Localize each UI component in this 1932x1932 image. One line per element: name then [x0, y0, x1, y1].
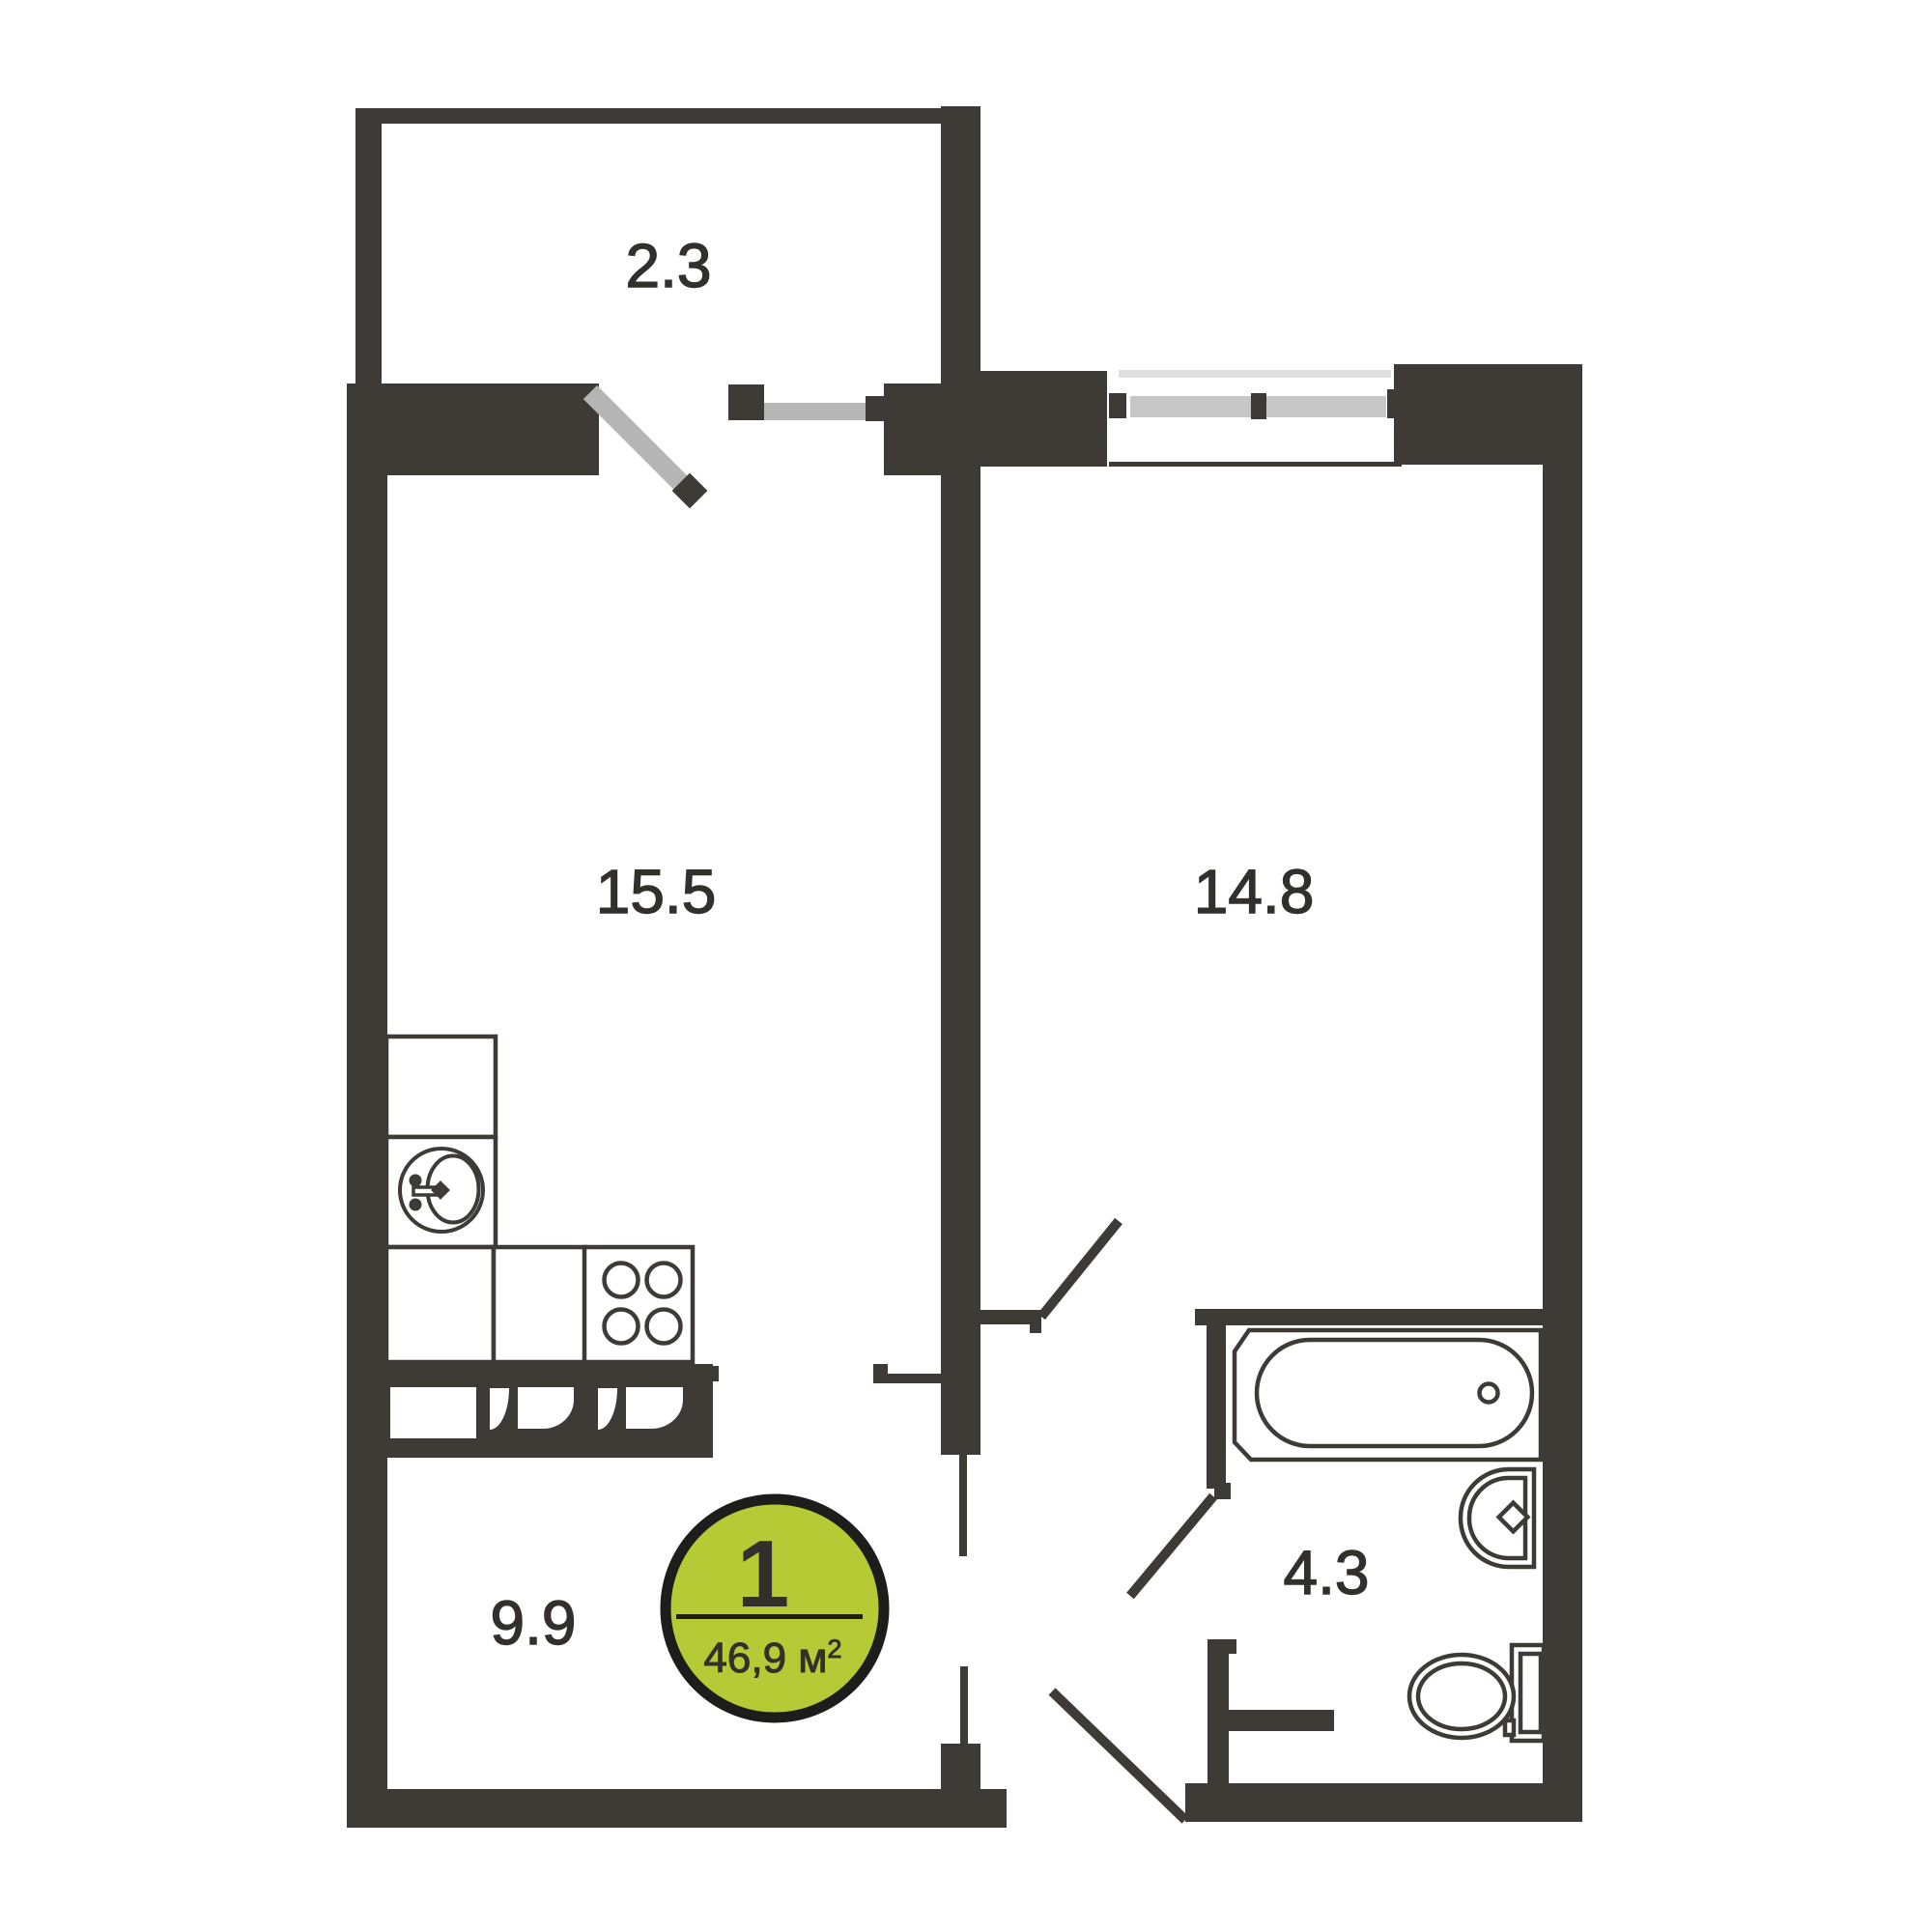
svg-text:4.3: 4.3: [1284, 1538, 1370, 1607]
svg-text:9.9: 9.9: [491, 1588, 577, 1658]
svg-text:1: 1: [737, 1520, 790, 1627]
svg-text:46,9 м2: 46,9 м2: [703, 1634, 841, 1682]
svg-text:14.8: 14.8: [1194, 857, 1315, 926]
svg-text:15.5: 15.5: [596, 857, 717, 926]
svg-text:2.3: 2.3: [626, 231, 712, 300]
